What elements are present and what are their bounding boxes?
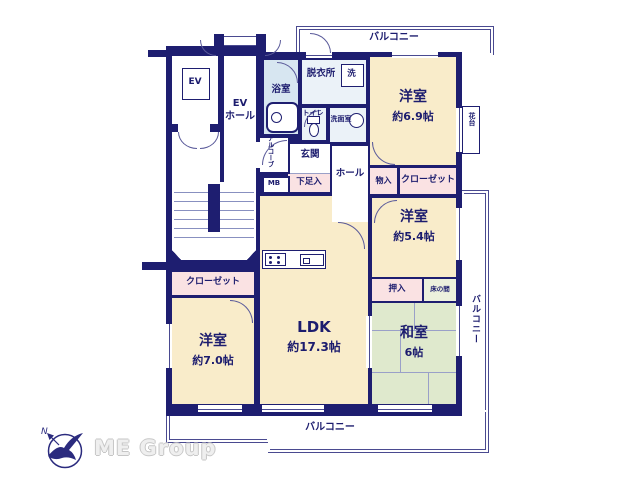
elevator-label: EV (182, 77, 208, 88)
room-ldk-label: LDK 約17.3帖 (260, 318, 368, 355)
dressing-label: 脱衣所 (300, 68, 342, 80)
bathroom-label: 浴室 (264, 84, 298, 96)
window (392, 51, 438, 58)
flower-stand-label: 花台 (466, 112, 476, 148)
tatami-line (428, 372, 429, 404)
wall-stub-top-left (148, 50, 168, 57)
passage-bridge (224, 36, 256, 46)
bathtub-icon (266, 102, 299, 133)
window (456, 208, 462, 260)
hall-label: ホール (330, 168, 370, 180)
shoe-cabinet-label: 下足入 (288, 177, 330, 188)
washroom-label: 洗面室 (326, 115, 356, 124)
stair-rail (208, 184, 220, 232)
stair-corner-right (243, 250, 256, 264)
entrance-step-line (290, 173, 330, 174)
window (198, 405, 242, 412)
compass-north-label: N (41, 427, 48, 437)
room-western-54-label: 洋室 約5.4帖 (372, 206, 456, 244)
room-western-70-label: 洋室 約7.0帖 (172, 330, 254, 368)
meter-box-label: MB (262, 179, 286, 188)
alcove-label: アルコーブ (263, 135, 274, 175)
compass-logo: N (38, 424, 90, 472)
room-western-69-label: 洋室 約6.9帖 (370, 86, 456, 124)
elevator-door-gap (178, 124, 210, 132)
ev-hall-label: EVホール (220, 98, 260, 123)
balcony-bottom-label: バルコニー (270, 422, 390, 435)
room-washitsu-label: 和室 6帖 (372, 322, 456, 360)
stove-burners-icon (269, 256, 272, 259)
kitchen-sink-icon (300, 254, 324, 266)
balcony-right-label: バルコニー (464, 294, 480, 358)
toilet-label: トイレ (298, 109, 328, 118)
washer-label: 洗 (341, 69, 362, 80)
floor-plan: バルコニー バルコニー バルコニー EV EVホール 浴室 脱衣所 洗 トイレ … (0, 0, 640, 480)
bathtub-drain-icon (271, 112, 282, 123)
window (262, 405, 324, 412)
stair-corner-left (172, 250, 185, 264)
compass-icon: N (38, 424, 90, 472)
tatami-line (372, 372, 456, 373)
logo-text: ME Group (94, 436, 217, 460)
hall-area (332, 146, 368, 222)
storage-label: 物入 (370, 176, 397, 186)
closet-north-label: クローゼット (398, 175, 458, 186)
tokonoma-label: 床の間 (424, 285, 456, 293)
oshiire-label: 押入 (372, 284, 422, 295)
wall-stub-left (142, 262, 168, 270)
window (378, 405, 432, 412)
closet-west-label: クローゼット (172, 277, 254, 288)
stove-icon (265, 253, 286, 266)
entrance-label: 玄関 (290, 149, 330, 161)
window (456, 306, 462, 356)
faucet-icon (303, 258, 310, 264)
alcove-opening (254, 142, 262, 168)
staircase (172, 182, 256, 260)
balcony-top-label: バルコニー (296, 32, 492, 45)
